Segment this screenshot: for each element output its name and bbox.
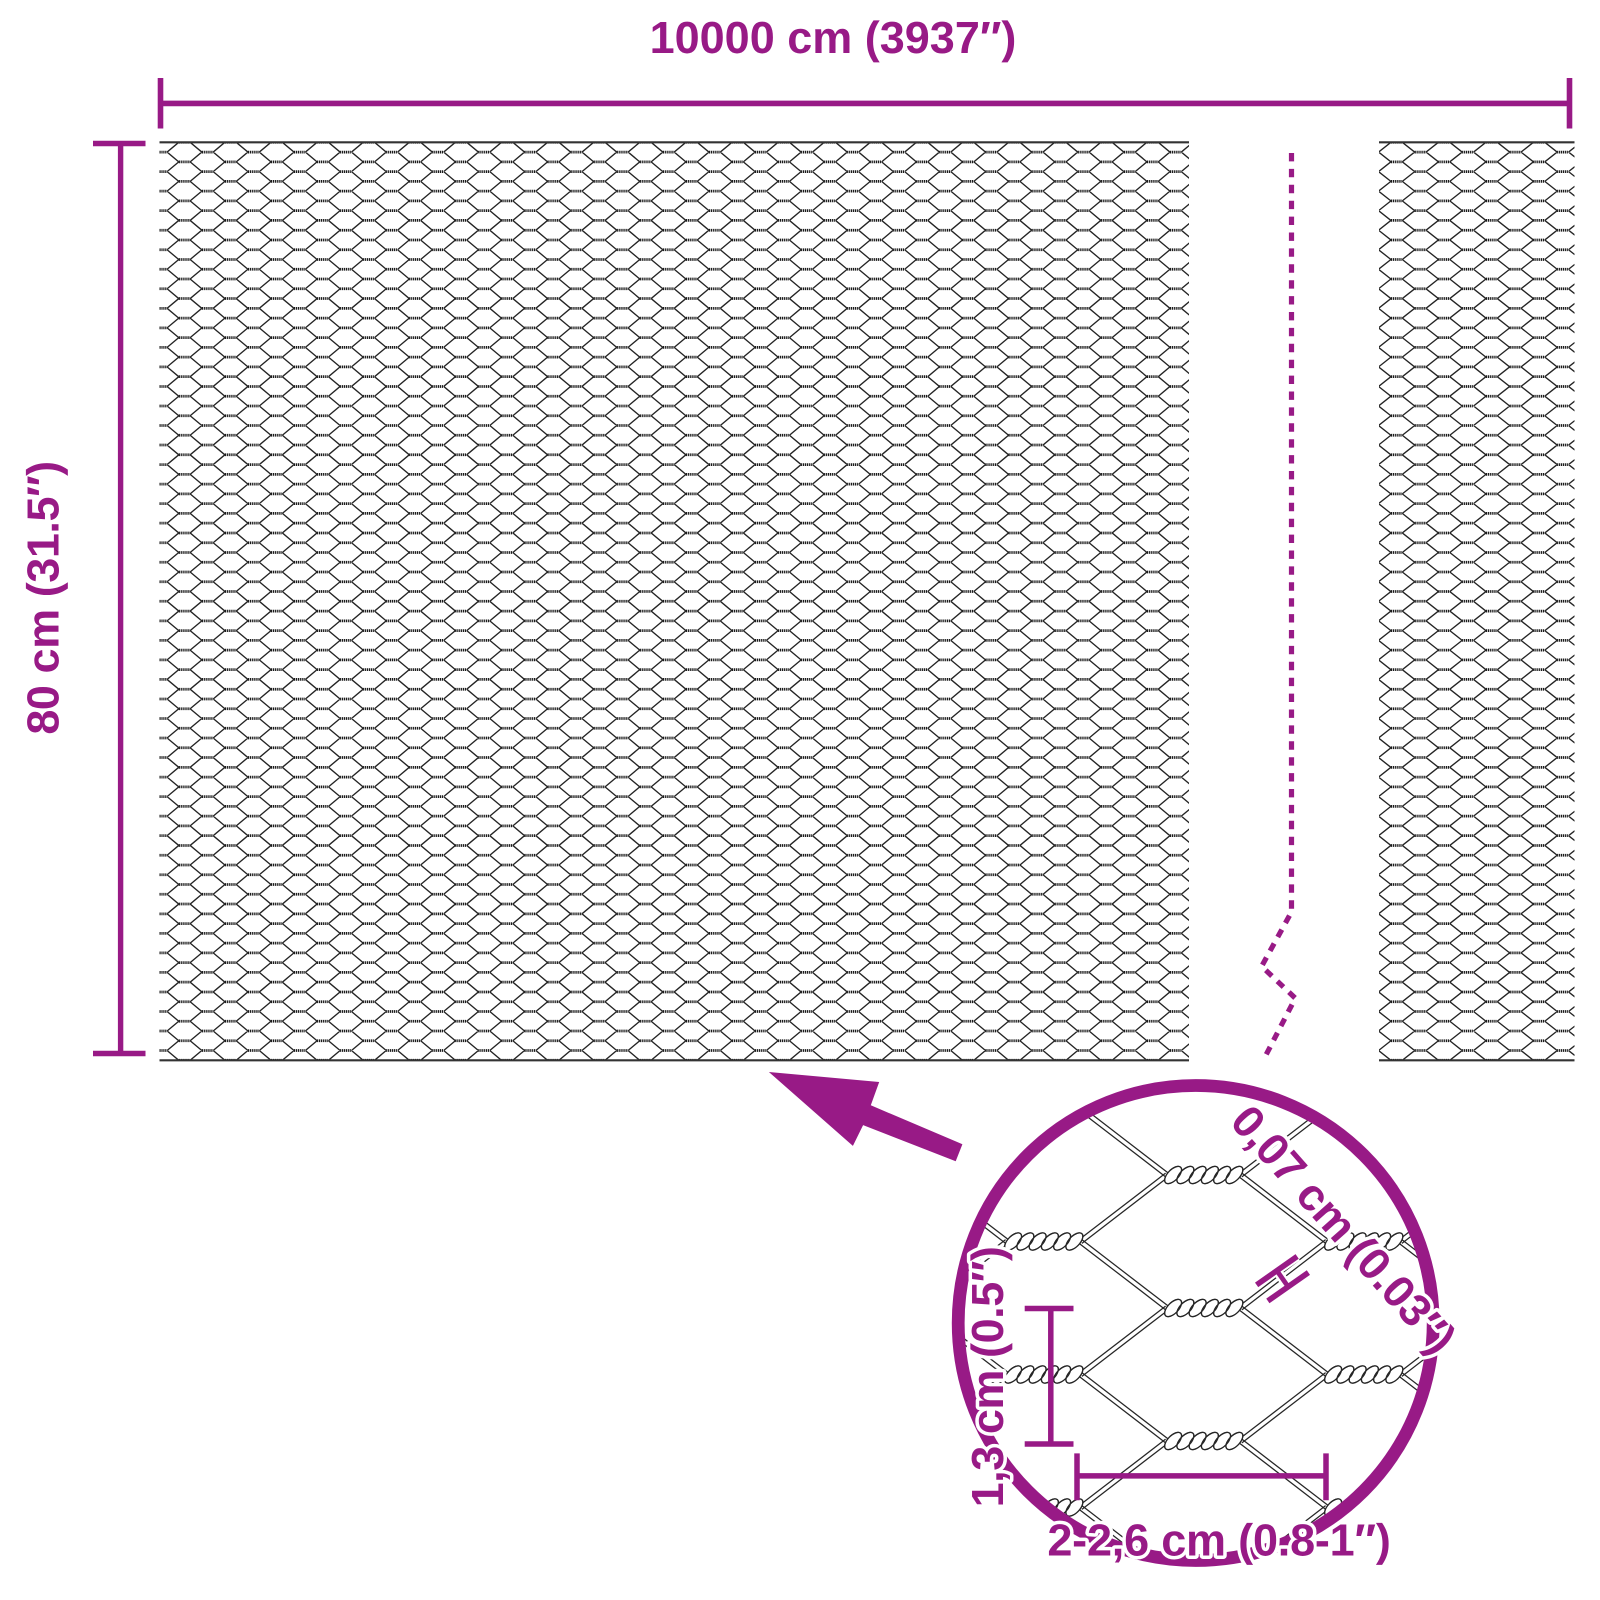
svg-text:10000 cm (3937″): 10000 cm (3937″) [650,12,1017,63]
svg-text:80 cm (31.5″): 80 cm (31.5″) [18,461,69,734]
svg-text:1,3 cm (0.5″): 1,3 cm (0.5″) [962,1247,1013,1508]
svg-text:2-2,6 cm (0.8-1″): 2-2,6 cm (0.8-1″) [1047,1514,1390,1565]
